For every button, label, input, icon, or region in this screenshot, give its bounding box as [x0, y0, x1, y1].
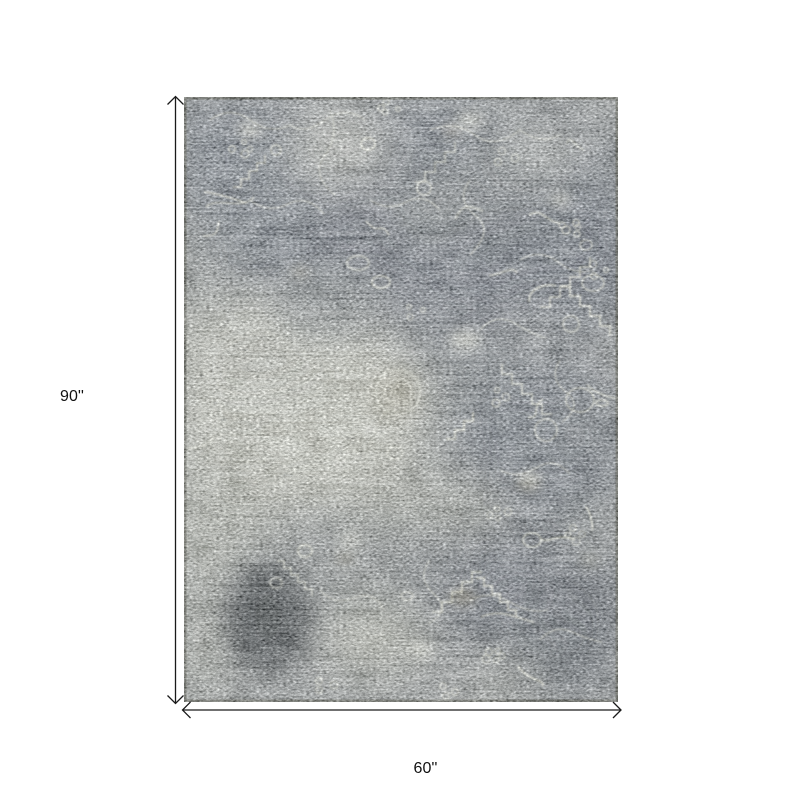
svg-text:60'': 60'' [414, 760, 438, 777]
svg-text:90'': 90'' [60, 388, 84, 405]
